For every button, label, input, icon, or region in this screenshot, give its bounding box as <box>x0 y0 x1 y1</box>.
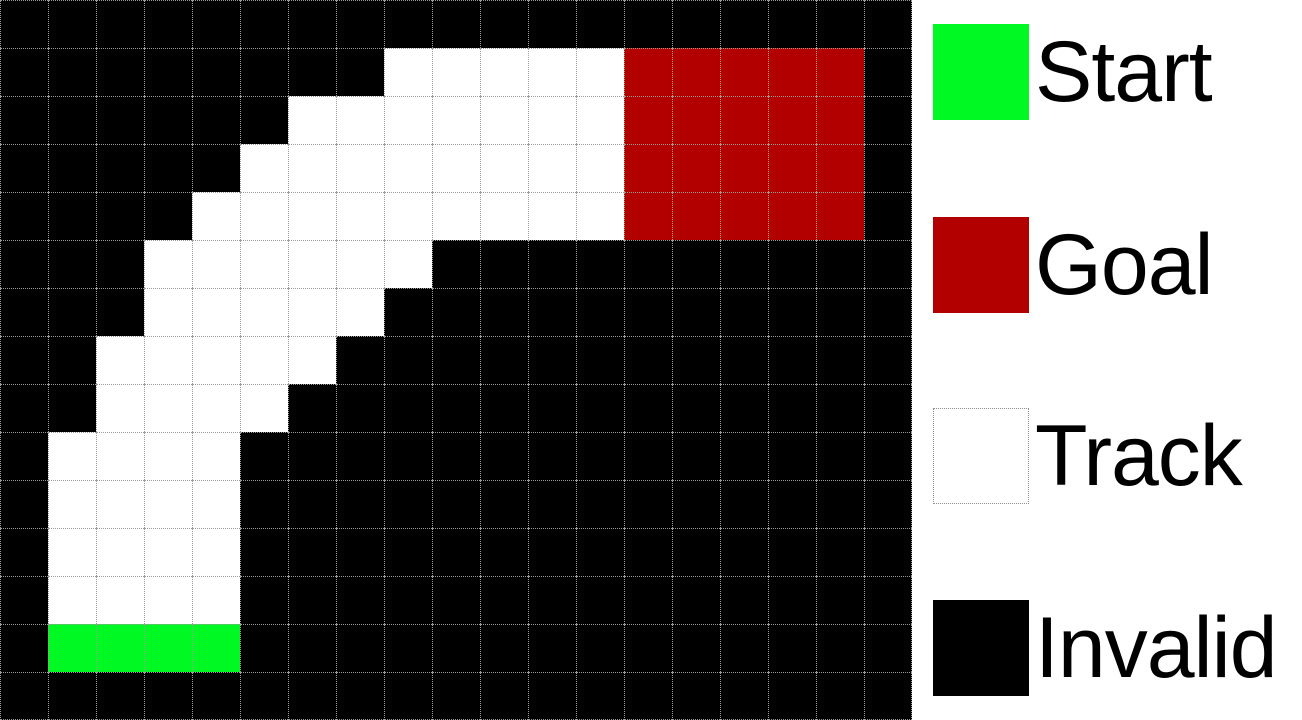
grid-cell-invalid <box>288 480 336 528</box>
grid-cell-invalid <box>816 0 864 48</box>
grid-cell-invalid <box>144 96 192 144</box>
grid-cell-invalid <box>384 624 432 672</box>
grid-cell-invalid <box>768 384 816 432</box>
grid-cell-track <box>96 480 144 528</box>
grid-cell-goal <box>816 192 864 240</box>
grid-cell-start <box>192 624 240 672</box>
grid-cell-invalid <box>864 384 912 432</box>
grid-cell-invalid <box>48 48 96 96</box>
grid-cell-goal <box>816 144 864 192</box>
grid-cell-invalid <box>288 672 336 720</box>
grid-cell-invalid <box>624 432 672 480</box>
grid-cell-goal <box>768 192 816 240</box>
grid-cell-invalid <box>528 528 576 576</box>
grid-cell-track <box>528 48 576 96</box>
grid-cell-track <box>192 240 240 288</box>
grid-cell-track <box>480 96 528 144</box>
grid-cell-invalid <box>672 0 720 48</box>
grid-cell-invalid <box>864 240 912 288</box>
grid-cell-goal <box>768 96 816 144</box>
grid-cell-invalid <box>480 240 528 288</box>
grid-cell-invalid <box>720 528 768 576</box>
legend-item-track: Track <box>933 408 1242 504</box>
grid-cell-invalid <box>192 0 240 48</box>
grid-cell-invalid <box>528 336 576 384</box>
grid-cell-track <box>288 144 336 192</box>
grid-cell-invalid <box>624 624 672 672</box>
grid-cell-track <box>288 192 336 240</box>
grid-cell-invalid <box>624 528 672 576</box>
grid-cell-invalid <box>816 480 864 528</box>
grid-cell-track <box>192 432 240 480</box>
grid-cell-invalid <box>480 384 528 432</box>
grid-cell-invalid <box>144 0 192 48</box>
grid-cell-invalid <box>288 0 336 48</box>
grid-cell-start <box>48 624 96 672</box>
grid-cell-track <box>96 576 144 624</box>
grid-cell-track <box>288 96 336 144</box>
grid-cell-invalid <box>336 576 384 624</box>
grid-cell-invalid <box>384 672 432 720</box>
grid-cell-invalid <box>384 336 432 384</box>
grid-cell-track <box>432 96 480 144</box>
grid-cell-track <box>384 144 432 192</box>
grid-cell-track <box>144 480 192 528</box>
grid-cell-invalid <box>528 384 576 432</box>
grid-cell-invalid <box>720 288 768 336</box>
grid-cell-invalid <box>144 48 192 96</box>
grid-cell-track <box>240 192 288 240</box>
grid-cell-invalid <box>432 480 480 528</box>
grid-cell-invalid <box>0 480 48 528</box>
grid-cell-invalid <box>240 576 288 624</box>
grid-cell-invalid <box>480 624 528 672</box>
grid-cell-invalid <box>720 240 768 288</box>
legend-label-invalid: Invalid <box>1035 605 1277 691</box>
grid-cell-invalid <box>48 336 96 384</box>
grid-cell-goal <box>624 192 672 240</box>
grid-cell-track <box>288 336 336 384</box>
grid-cell-track <box>336 144 384 192</box>
grid-cell-invalid <box>432 384 480 432</box>
grid-cell-invalid <box>288 528 336 576</box>
grid-cell-invalid <box>576 624 624 672</box>
grid-cell-track <box>576 192 624 240</box>
grid-cell-track <box>96 528 144 576</box>
grid-cell-invalid <box>96 48 144 96</box>
grid-cell-goal <box>768 48 816 96</box>
grid-cell-track <box>192 576 240 624</box>
grid-cell-track <box>384 192 432 240</box>
grid-cell-invalid <box>768 528 816 576</box>
grid-cell-track <box>432 144 480 192</box>
grid-cell-invalid <box>576 288 624 336</box>
grid-cell-track <box>480 192 528 240</box>
grid-cell-track <box>192 480 240 528</box>
track-swatch <box>933 408 1029 504</box>
grid-cell-track <box>144 528 192 576</box>
grid-cell-track <box>192 336 240 384</box>
grid-cell-track <box>48 576 96 624</box>
grid-cell-invalid <box>720 0 768 48</box>
grid-cell-invalid <box>672 624 720 672</box>
grid-cell-invalid <box>288 48 336 96</box>
grid-cell-invalid <box>240 480 288 528</box>
grid-cell-invalid <box>576 480 624 528</box>
grid-cell-track <box>240 384 288 432</box>
grid-cell-invalid <box>96 288 144 336</box>
grid-cell-invalid <box>672 576 720 624</box>
grid-cell-track <box>96 336 144 384</box>
grid-cell-track <box>192 288 240 336</box>
grid-cell-track <box>96 432 144 480</box>
grid-cell-invalid <box>432 240 480 288</box>
invalid-swatch <box>933 600 1029 696</box>
grid-cell-goal <box>720 48 768 96</box>
grid-cell-invalid <box>240 672 288 720</box>
grid-cell-invalid <box>384 576 432 624</box>
grid-cell-invalid <box>624 576 672 624</box>
grid-cell-invalid <box>528 672 576 720</box>
grid-cell-invalid <box>480 336 528 384</box>
grid-cell-track <box>144 432 192 480</box>
grid-cell-invalid <box>240 432 288 480</box>
grid-cell-invalid <box>384 432 432 480</box>
grid-cell-invalid <box>768 672 816 720</box>
grid-cell-invalid <box>720 576 768 624</box>
grid-cell-goal <box>720 96 768 144</box>
grid-cell-invalid <box>0 144 48 192</box>
grid-cell-invalid <box>864 48 912 96</box>
grid-cell-track <box>576 144 624 192</box>
grid-cell-track <box>192 192 240 240</box>
grid-cell-invalid <box>480 528 528 576</box>
grid-cell-invalid <box>624 288 672 336</box>
grid-cell-track <box>144 336 192 384</box>
grid-cell-invalid <box>48 0 96 48</box>
grid-cell-invalid <box>672 528 720 576</box>
grid-cell-invalid <box>432 288 480 336</box>
grid-cell-invalid <box>144 144 192 192</box>
grid-cell-invalid <box>768 0 816 48</box>
grid-cell-invalid <box>672 384 720 432</box>
grid-cell-invalid <box>624 240 672 288</box>
grid-cell-invalid <box>48 144 96 192</box>
grid-cell-track <box>144 288 192 336</box>
grid-cell-invalid <box>672 432 720 480</box>
grid-cell-invalid <box>240 48 288 96</box>
grid-cell-invalid <box>336 672 384 720</box>
legend-item-invalid: Invalid <box>933 600 1277 696</box>
grid-cell-invalid <box>816 336 864 384</box>
grid-cell-invalid <box>432 576 480 624</box>
legend: Start Goal Track Invalid <box>912 0 1302 720</box>
grid-cell-invalid <box>0 672 48 720</box>
grid-cell-invalid <box>576 240 624 288</box>
grid-cell-track <box>48 432 96 480</box>
grid-cell-invalid <box>288 384 336 432</box>
grid-cell-invalid <box>192 144 240 192</box>
start-swatch <box>933 24 1029 120</box>
grid-cell-start <box>144 624 192 672</box>
grid-cell-track <box>336 192 384 240</box>
goal-swatch <box>933 217 1029 313</box>
grid-cell-start <box>96 624 144 672</box>
grid-cell-track <box>240 240 288 288</box>
grid-cell-invalid <box>0 0 48 48</box>
grid-cell-invalid <box>0 240 48 288</box>
grid-cell-invalid <box>816 624 864 672</box>
grid-cell-invalid <box>576 432 624 480</box>
grid-cell-invalid <box>864 528 912 576</box>
grid-cell-track <box>432 48 480 96</box>
grid-cell-invalid <box>336 336 384 384</box>
grid-cell-invalid <box>96 96 144 144</box>
grid-cell-goal <box>768 144 816 192</box>
grid-cell-invalid <box>336 432 384 480</box>
grid-cell-invalid <box>432 432 480 480</box>
grid-cell-invalid <box>672 480 720 528</box>
grid-cell-invalid <box>768 576 816 624</box>
grid-cell-invalid <box>384 288 432 336</box>
grid-cell-invalid <box>480 576 528 624</box>
grid-cell-invalid <box>0 624 48 672</box>
grid-cell-goal <box>720 192 768 240</box>
grid-cell-invalid <box>288 576 336 624</box>
grid-cell-goal <box>672 48 720 96</box>
grid-cell-invalid <box>0 384 48 432</box>
grid-cell-invalid <box>432 528 480 576</box>
grid-cell-invalid <box>96 144 144 192</box>
grid-cell-track <box>528 192 576 240</box>
grid-cell-invalid <box>768 624 816 672</box>
grid-cell-invalid <box>0 576 48 624</box>
track-grid <box>0 0 912 720</box>
grid-cell-invalid <box>288 624 336 672</box>
grid-cell-track <box>48 528 96 576</box>
grid-cell-invalid <box>48 192 96 240</box>
grid-cell-invalid <box>720 672 768 720</box>
grid-cell-invalid <box>864 432 912 480</box>
grid-cell-invalid <box>864 480 912 528</box>
grid-cell-invalid <box>528 240 576 288</box>
grid-cell-invalid <box>576 576 624 624</box>
grid-cell-invalid <box>384 384 432 432</box>
grid-cell-invalid <box>864 96 912 144</box>
grid-cell-invalid <box>480 432 528 480</box>
grid-cell-goal <box>624 48 672 96</box>
grid-cell-track <box>144 240 192 288</box>
grid-cell-invalid <box>48 672 96 720</box>
grid-cell-track <box>384 48 432 96</box>
legend-item-goal: Goal <box>933 217 1213 313</box>
grid-cell-invalid <box>432 336 480 384</box>
grid-cell-invalid <box>864 672 912 720</box>
grid-cell-invalid <box>528 288 576 336</box>
grid-cell-invalid <box>864 624 912 672</box>
grid-cell-invalid <box>432 624 480 672</box>
grid-cell-invalid <box>528 480 576 528</box>
grid-cell-track <box>480 48 528 96</box>
grid-cell-invalid <box>0 336 48 384</box>
grid-cell-invalid <box>816 528 864 576</box>
grid-cell-track <box>336 96 384 144</box>
grid-cell-track <box>240 288 288 336</box>
grid-cell-invalid <box>480 480 528 528</box>
grid-cell-track <box>384 240 432 288</box>
grid-cell-invalid <box>864 576 912 624</box>
grid-cell-invalid <box>864 336 912 384</box>
grid-cell-invalid <box>384 0 432 48</box>
racetrack-figure: Start Goal Track Invalid <box>0 0 1302 720</box>
grid-cell-invalid <box>816 288 864 336</box>
grid-cell-invalid <box>624 0 672 48</box>
grid-cell-invalid <box>528 624 576 672</box>
grid-cell-invalid <box>0 48 48 96</box>
grid-cell-invalid <box>720 624 768 672</box>
grid-cell-track <box>288 240 336 288</box>
grid-cell-invalid <box>96 672 144 720</box>
legend-label-track: Track <box>1035 413 1242 499</box>
grid-cell-track <box>336 288 384 336</box>
grid-cell-goal <box>816 96 864 144</box>
grid-cell-invalid <box>864 144 912 192</box>
grid-cell-track <box>384 96 432 144</box>
grid-cell-goal <box>672 192 720 240</box>
grid-cell-invalid <box>864 288 912 336</box>
grid-cell-invalid <box>672 336 720 384</box>
grid-cell-invalid <box>720 336 768 384</box>
grid-cell-track <box>576 96 624 144</box>
grid-cell-invalid <box>576 528 624 576</box>
grid-cell-invalid <box>432 672 480 720</box>
grid-cell-invalid <box>96 240 144 288</box>
grid-cell-invalid <box>384 528 432 576</box>
grid-cell-invalid <box>480 0 528 48</box>
grid-cell-invalid <box>768 240 816 288</box>
grid-cell-goal <box>720 144 768 192</box>
grid-cell-track <box>144 384 192 432</box>
grid-cell-goal <box>672 96 720 144</box>
grid-cell-invalid <box>96 192 144 240</box>
grid-cell-invalid <box>48 96 96 144</box>
grid-cell-invalid <box>0 96 48 144</box>
grid-cell-invalid <box>480 288 528 336</box>
grid-cell-invalid <box>48 288 96 336</box>
grid-cell-invalid <box>768 336 816 384</box>
grid-cell-invalid <box>720 432 768 480</box>
grid-cell-invalid <box>0 192 48 240</box>
grid-cell-goal <box>816 48 864 96</box>
grid-cell-invalid <box>336 480 384 528</box>
grid-cell-invalid <box>96 0 144 48</box>
grid-cell-invalid <box>576 672 624 720</box>
grid-cell-invalid <box>624 672 672 720</box>
grid-cell-track <box>240 336 288 384</box>
grid-cell-track <box>288 288 336 336</box>
grid-cell-invalid <box>864 0 912 48</box>
grid-cell-invalid <box>816 432 864 480</box>
grid-cell-track <box>480 144 528 192</box>
grid-cell-invalid <box>192 672 240 720</box>
grid-cell-invalid <box>336 0 384 48</box>
grid-cell-track <box>96 384 144 432</box>
grid-cell-invalid <box>624 336 672 384</box>
grid-cell-track <box>240 144 288 192</box>
grid-cell-invalid <box>432 0 480 48</box>
grid-cell-invalid <box>672 288 720 336</box>
grid-cell-goal <box>624 96 672 144</box>
grid-cell-invalid <box>240 0 288 48</box>
legend-item-start: Start <box>933 24 1212 120</box>
legend-label-goal: Goal <box>1035 222 1213 308</box>
grid-cell-invalid <box>864 192 912 240</box>
grid-cell-track <box>48 480 96 528</box>
grid-cell-invalid <box>384 480 432 528</box>
grid-cell-invalid <box>144 192 192 240</box>
grid-cell-invalid <box>48 384 96 432</box>
grid-cell-invalid <box>480 672 528 720</box>
grid-cell-invalid <box>336 384 384 432</box>
grid-cell-track <box>144 576 192 624</box>
grid-cell-invalid <box>576 336 624 384</box>
grid-cell-invalid <box>624 480 672 528</box>
grid-cell-invalid <box>528 432 576 480</box>
grid-cell-invalid <box>720 384 768 432</box>
grid-cell-invalid <box>336 48 384 96</box>
grid-cell-goal <box>672 144 720 192</box>
grid-cell-invalid <box>576 384 624 432</box>
grid-cell-track <box>336 240 384 288</box>
grid-cell-invalid <box>672 240 720 288</box>
grid-cell-invalid <box>576 0 624 48</box>
grid-cell-invalid <box>240 624 288 672</box>
grid-cell-invalid <box>816 576 864 624</box>
grid-cell-invalid <box>240 96 288 144</box>
grid-cell-invalid <box>816 672 864 720</box>
grid-cell-track <box>576 48 624 96</box>
grid-cell-invalid <box>528 576 576 624</box>
grid-cell-invalid <box>672 672 720 720</box>
grid-cell-track <box>528 96 576 144</box>
grid-cell-invalid <box>0 288 48 336</box>
grid-cell-invalid <box>0 432 48 480</box>
grid-cell-invalid <box>48 240 96 288</box>
grid-cell-track <box>432 192 480 240</box>
grid-cell-invalid <box>768 480 816 528</box>
grid-cell-invalid <box>816 240 864 288</box>
grid-cell-invalid <box>144 672 192 720</box>
grid-cell-invalid <box>528 0 576 48</box>
grid-cell-invalid <box>192 96 240 144</box>
grid-cell-invalid <box>768 432 816 480</box>
grid-cell-invalid <box>720 480 768 528</box>
legend-label-start: Start <box>1035 29 1212 115</box>
grid-cell-invalid <box>0 528 48 576</box>
grid-cell-invalid <box>624 384 672 432</box>
grid-cell-invalid <box>816 384 864 432</box>
grid-cell-invalid <box>192 48 240 96</box>
grid-cell-track <box>192 528 240 576</box>
grid-cell-invalid <box>288 432 336 480</box>
grid-cell-track <box>528 144 576 192</box>
grid-cell-invalid <box>240 528 288 576</box>
grid-cell-track <box>192 384 240 432</box>
grid-cell-invalid <box>336 624 384 672</box>
grid-cell-invalid <box>336 528 384 576</box>
grid-cell-invalid <box>768 288 816 336</box>
grid-cell-goal <box>624 144 672 192</box>
